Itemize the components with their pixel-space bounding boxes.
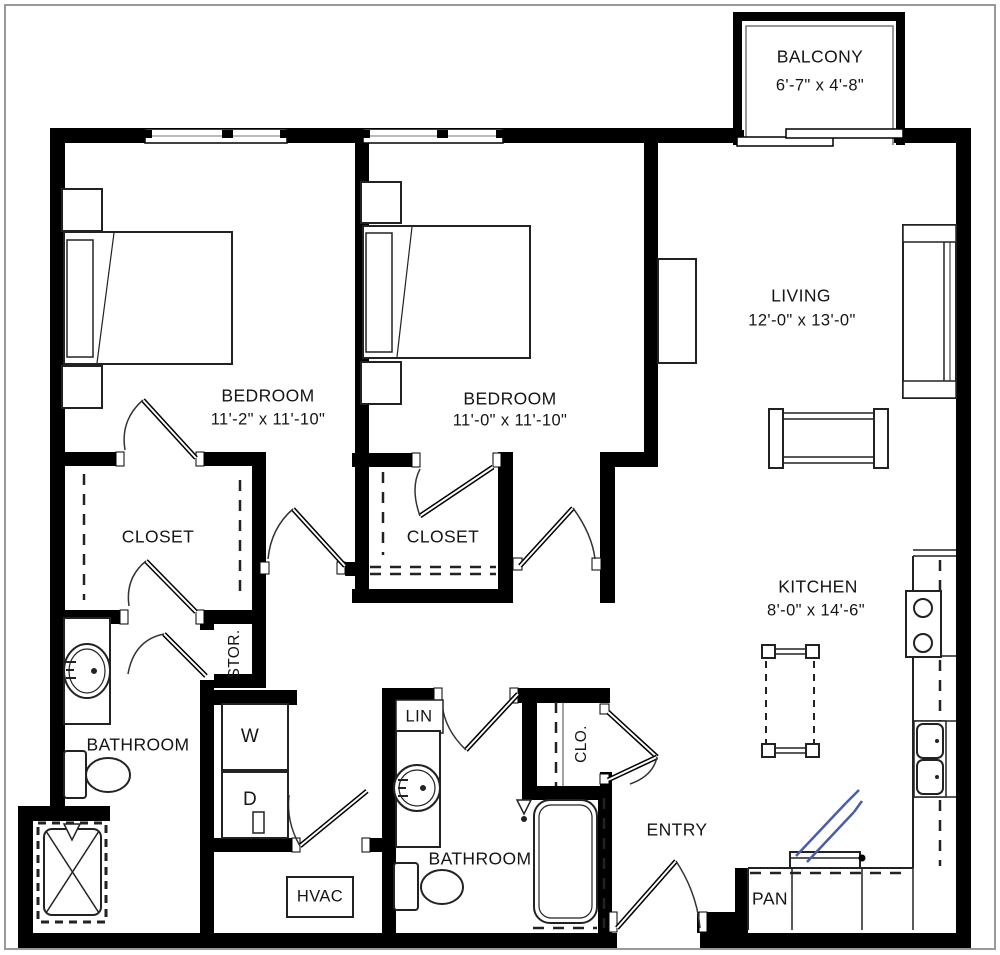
toilet-2-tank (394, 863, 418, 910)
room-label-bedroom-2: BEDROOM (463, 389, 556, 410)
nightstand (361, 182, 401, 223)
label-hvac: HVAC (297, 888, 343, 907)
toilet-1-bowl (86, 758, 130, 792)
label-bathroom-1: BATHROOM (86, 735, 189, 756)
door-bathroom-1 (128, 634, 206, 676)
room-dims-bedroom-2: 11'-0" x 11'-10" (453, 412, 568, 431)
toilet-1-tank (64, 751, 86, 798)
kitchen-sink (914, 721, 946, 797)
sliding-door (737, 129, 903, 146)
label-dryer: D (243, 789, 257, 811)
label-closet-2: CLOSET (407, 527, 479, 548)
window-bedroom-1 (145, 129, 287, 143)
room-label-living: LIVING (771, 286, 831, 307)
door-closet1-bath (128, 561, 196, 612)
door-bedroom1-closet (124, 400, 196, 458)
stove (906, 591, 941, 657)
door-entry-closet (608, 712, 657, 784)
label-entry-closet: CLO. (573, 725, 591, 763)
window-bedroom-2 (363, 129, 503, 143)
label-entry: ENTRY (647, 820, 708, 841)
door-closet-2 (415, 467, 493, 516)
floor-plan: BALCONY 6'-7" x 4'-8" BEDROOM 11'-2" x 1… (0, 0, 1000, 955)
toilet-2-bowl (421, 870, 463, 904)
room-dims-balcony: 6'-7" x 4'-8" (776, 77, 864, 96)
nightstand (62, 366, 102, 408)
door-entry (617, 861, 700, 928)
label-linen: LIN (406, 708, 433, 727)
living-furniture (658, 225, 956, 468)
kitchen-island-table (762, 645, 819, 757)
bathroom-2-fixtures (394, 700, 597, 923)
room-dims-bedroom-1: 11'-2" x 11'-10" (211, 411, 326, 430)
nightstand (62, 189, 102, 231)
label-washer: W (241, 726, 259, 748)
room-label-bedroom-1: BEDROOM (221, 386, 314, 407)
label-closet-1: CLOSET (122, 527, 194, 548)
room-dims-kitchen: 8'-0" x 14'-6" (767, 602, 865, 621)
tv-console (658, 259, 696, 363)
label-bathroom-2: BATHROOM (428, 849, 531, 870)
sofa (903, 225, 956, 398)
coffee-table (769, 409, 783, 468)
bed-2 (361, 182, 530, 404)
room-label-kitchen: KITCHEN (778, 577, 858, 598)
room-dims-living: 12'-0" x 13'-0" (748, 312, 855, 331)
tub-shower-head-icon (517, 800, 531, 814)
nightstand (361, 362, 401, 404)
label-storage: STOR. (226, 629, 244, 678)
door-hall-suite (268, 509, 345, 566)
floor-plan-drawing (0, 0, 1000, 955)
appliance-counter (790, 790, 866, 868)
door-bathroom-2 (442, 694, 518, 750)
room-label-balcony: BALCONY (777, 47, 863, 68)
bed-1 (62, 189, 232, 408)
label-pantry: PAN (752, 889, 788, 910)
door-bedroom-2 (520, 508, 595, 566)
